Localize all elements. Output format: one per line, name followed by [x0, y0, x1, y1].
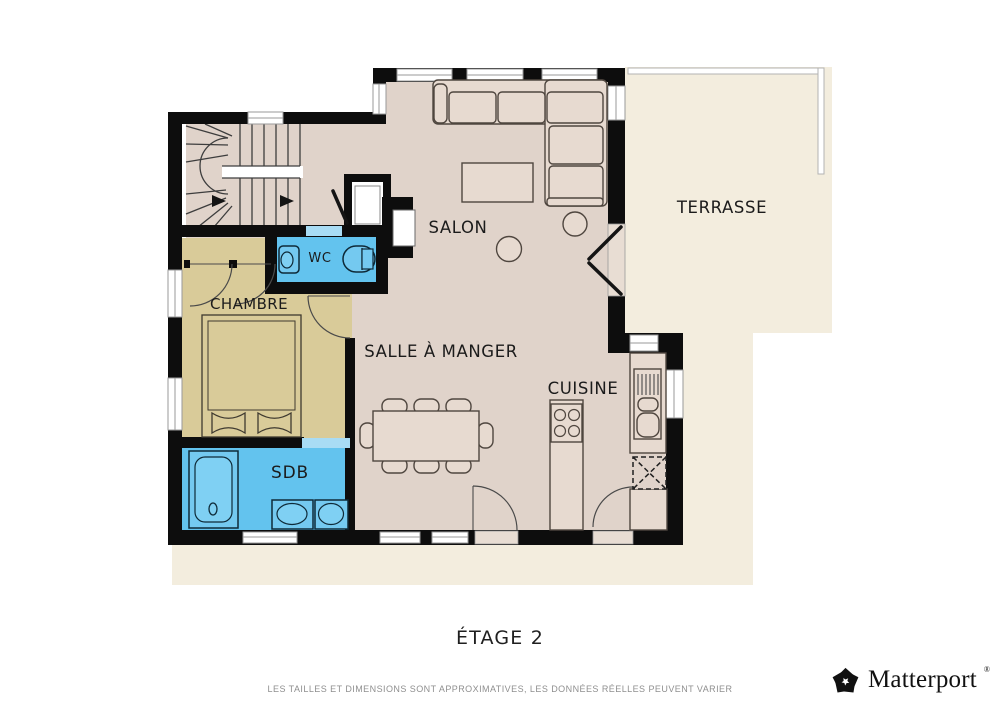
wc-sliding-door — [306, 226, 342, 236]
stove — [551, 404, 582, 442]
appliance-space — [633, 457, 666, 489]
registered-mark: ® — [984, 665, 990, 674]
terrace-railing-top — [628, 68, 824, 74]
pouf — [497, 237, 522, 262]
toilet — [343, 246, 375, 272]
label-sdb: SDB — [271, 463, 309, 483]
pouf — [563, 212, 587, 236]
wc-basin — [279, 246, 299, 273]
bathroom-sink — [315, 500, 348, 529]
dining-table — [373, 411, 479, 461]
label-terrasse: TERRASSE — [676, 198, 767, 217]
label-salle-a-manger: SALLE À MANGER — [364, 342, 518, 361]
terrace-railing-right — [818, 68, 824, 174]
label-salon: SALON — [428, 218, 487, 237]
label-wc: WC — [308, 251, 331, 266]
kitchen-sink — [634, 369, 661, 439]
matterport-wordmark: Matterport — [868, 666, 977, 694]
bathtub — [189, 451, 238, 528]
label-chambre: CHAMBRE — [210, 295, 288, 313]
label-cuisine: CUISINE — [548, 379, 619, 398]
bathroom-sink — [272, 500, 313, 529]
floorplan-canvas: SALON TERRASSE WC CHAMBRE SALLE À MANGER… — [0, 0, 1000, 707]
stair-landing-rail — [222, 166, 303, 178]
matterport-logo: Matterport ® — [830, 661, 990, 699]
coffee-table — [462, 163, 533, 202]
kitchen-door-sill — [593, 531, 633, 544]
matterport-pinwheel-icon — [830, 665, 861, 696]
entry-door-sill — [475, 531, 518, 544]
bed — [202, 315, 301, 437]
sdb-sliding-door — [302, 438, 350, 448]
floor-title: ÉTAGE 2 — [0, 627, 1000, 649]
